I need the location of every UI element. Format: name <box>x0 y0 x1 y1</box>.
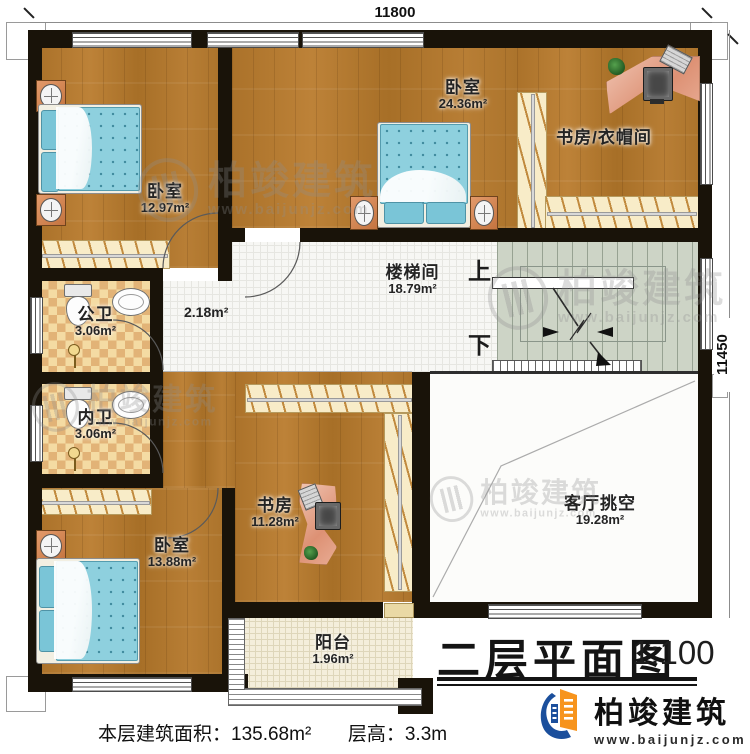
label-balcony: 阳台 1.96m² <box>288 633 378 667</box>
wall-bath-right <box>150 281 163 488</box>
room-area: 13.88m² <box>122 555 222 570</box>
window-top-1 <box>72 32 192 48</box>
room-area: 12.97m² <box>110 201 220 216</box>
void-edge-line <box>430 371 698 374</box>
nightstand <box>350 196 378 230</box>
floor-drain <box>68 344 80 356</box>
wall-bed2-bottom-b <box>300 228 698 242</box>
dimension-line-top <box>30 22 712 23</box>
title-underline-thick <box>437 677 697 681</box>
label-bedroom-tl: 卧室 12.97m² <box>110 182 220 216</box>
room-area: 19.28m² <box>535 513 665 528</box>
wall-bed1-bottom <box>28 268 163 281</box>
axis-tick-top-left <box>23 7 34 18</box>
room-name: 卧室 <box>110 182 220 201</box>
footer-floor-area: 本层建筑面积：135.68m² <box>98 724 311 745</box>
wardrobe-bedroom-tl <box>40 240 170 269</box>
brand-name: 柏竣建筑 <box>594 688 746 732</box>
room-area: 24.36m² <box>408 97 518 112</box>
label-bath-private: 内卫 3.06m² <box>58 408 133 442</box>
dimension-top-value: 11800 <box>352 4 438 21</box>
brand-logo-building <box>560 689 577 731</box>
wall-bed2-bottom-a <box>232 228 245 242</box>
plan-scale: 1:100 <box>632 634 715 672</box>
room-name: 楼梯间 <box>355 263 470 282</box>
floor-hall-tile-b <box>163 281 232 372</box>
bed-blanket <box>54 561 92 659</box>
window-top-2 <box>207 32 299 48</box>
brand-logo-icon <box>538 686 588 740</box>
label-hallway-area: 2.18m² <box>184 304 228 320</box>
wardrobe-study-right <box>384 413 414 592</box>
nightstand <box>36 194 66 226</box>
computer-monitor <box>643 67 673 101</box>
window-bottom-bedroom <box>72 677 192 692</box>
stairs-down-label: 下 <box>468 326 491 360</box>
wardrobe-bedroom-bl <box>36 489 152 515</box>
room-name: 公卫 <box>58 305 133 324</box>
footer-stats: 本层建筑面积：135.68m² 层高：3.3m <box>98 719 447 746</box>
room-area: 3.06m² <box>58 427 133 442</box>
room-name: 内卫 <box>58 408 133 427</box>
floor-plan-page: 卧室 12.97m² 卧室 24.36m² 书房/衣帽间 楼梯间 18.79m²… <box>0 0 750 754</box>
wall-bath-divider <box>28 372 163 384</box>
brand-text: 柏竣建筑 www.baijunjz.com <box>594 688 746 747</box>
room-area: 1.96m² <box>288 652 378 667</box>
floor-drain <box>68 447 80 459</box>
room-area: 18.79m² <box>355 282 470 297</box>
dimension-right-value: 11450 <box>714 318 731 392</box>
plant <box>304 546 318 560</box>
stair-handrail <box>492 277 634 289</box>
window-left-bath-public <box>30 297 43 354</box>
wardrobe-divider-top <box>517 92 547 230</box>
nightstand-knob <box>474 200 494 226</box>
label-bath-public: 公卫 3.06m² <box>58 305 133 339</box>
room-name: 阳台 <box>288 633 378 652</box>
wall-study-right <box>412 372 430 602</box>
room-area: 11.28m² <box>230 515 320 530</box>
hall-floor-seam <box>163 371 412 372</box>
room-name: 书房/衣帽间 <box>540 128 668 147</box>
bed-blanket <box>56 107 92 189</box>
axis-tick-top-right <box>701 7 712 18</box>
nightstand-knob <box>354 200 374 226</box>
window-bottom-living <box>488 604 642 619</box>
plant <box>608 58 625 75</box>
nightstand-knob <box>40 198 62 222</box>
nightstand-knob <box>40 534 62 558</box>
room-area: 3.06m² <box>58 324 133 339</box>
bed-pillow <box>426 202 466 224</box>
room-name: 卧室 <box>408 78 518 97</box>
stairs-up-label: 上 <box>468 252 491 286</box>
wardrobe-study-top <box>245 384 414 413</box>
label-bedroom-top: 卧室 24.36m² <box>408 78 518 112</box>
floor-hall-tile-a <box>232 242 497 372</box>
balcony-door <box>384 603 414 618</box>
balcony-rail-left <box>228 618 245 690</box>
room-name: 客厅挑空 <box>535 494 665 513</box>
label-living-void: 客厅挑空 19.28m² <box>535 494 665 528</box>
window-left-bath-private <box>30 405 43 462</box>
balcony-rail-bottom <box>228 688 422 706</box>
label-bedroom-bl: 卧室 13.88m² <box>122 536 222 570</box>
label-stair-hall: 楼梯间 18.79m² <box>355 263 470 297</box>
monitor-stand <box>650 99 664 104</box>
wall-bath-bottom <box>28 474 150 488</box>
wall-bed1-bed2 <box>218 48 232 281</box>
window-right-stairs <box>700 258 713 350</box>
window-right-cloak <box>700 83 713 185</box>
wall-study-bottom <box>235 602 383 618</box>
room-name: 卧室 <box>122 536 222 555</box>
nightstand <box>470 196 498 230</box>
room-name: 书房 <box>230 496 320 515</box>
footer-floor-height: 层高：3.3m <box>348 724 447 745</box>
label-study: 书房 11.28m² <box>230 496 320 530</box>
window-top-3 <box>302 32 424 48</box>
wardrobe-cloak <box>545 196 699 229</box>
brand-url: www.baijunjz.com <box>594 732 746 747</box>
label-study-cloak: 书房/衣帽间 <box>540 128 668 147</box>
floor-living-void <box>430 372 698 602</box>
floor-corridor <box>163 372 235 488</box>
bed-pillow <box>384 202 424 224</box>
